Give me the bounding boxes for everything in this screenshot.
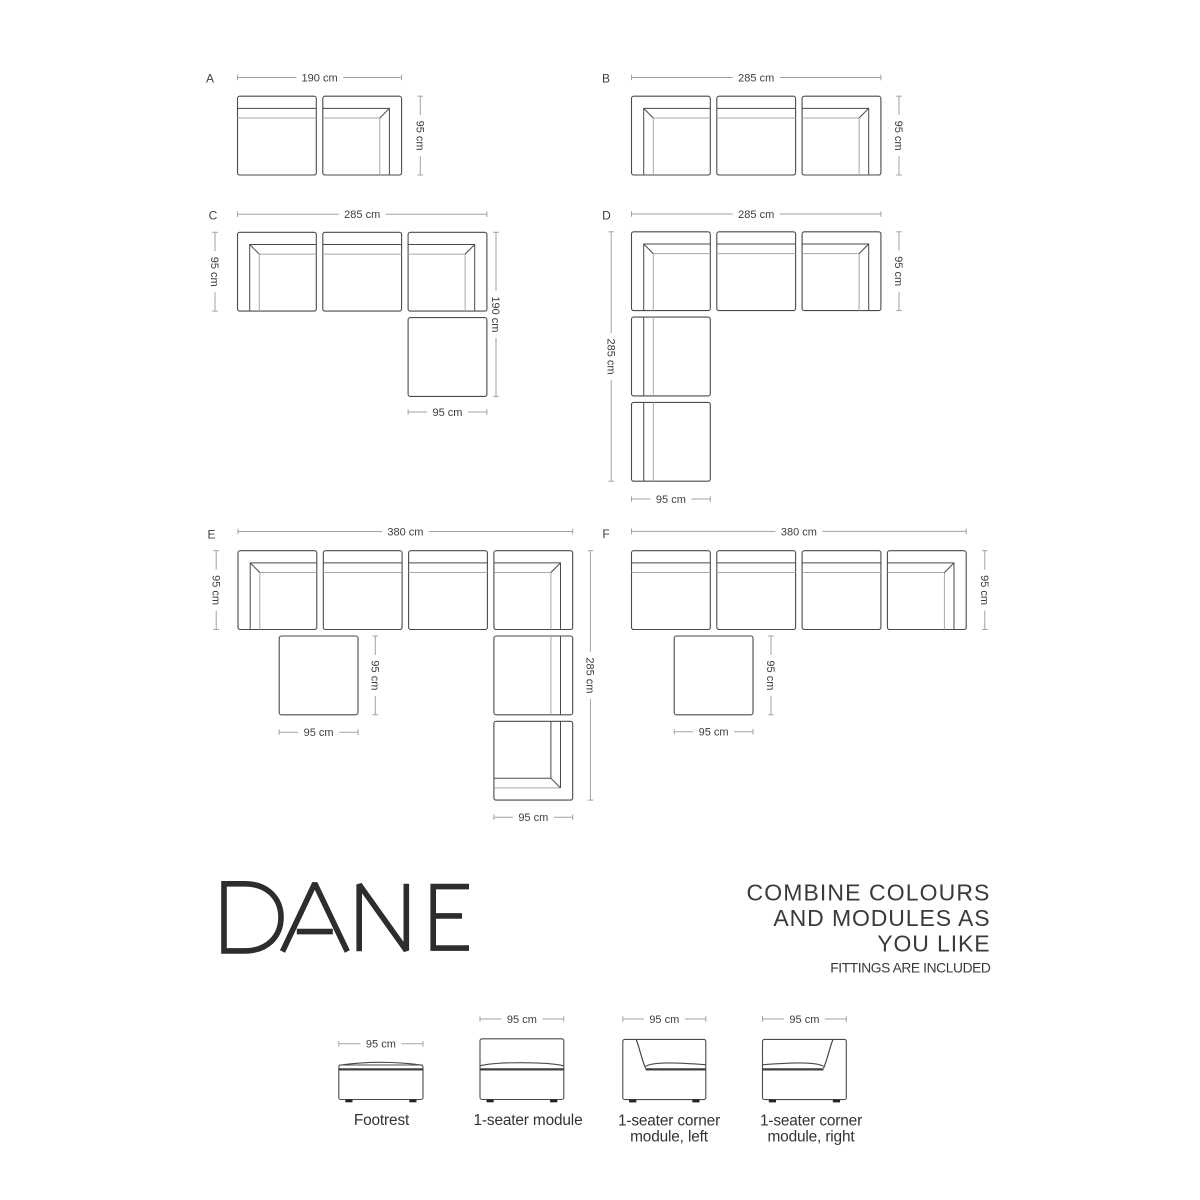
svg-text:1-seater corner: 1-seater corner — [618, 1113, 720, 1130]
svg-text:E: E — [207, 528, 215, 542]
svg-text:C: C — [209, 209, 218, 223]
svg-text:285 cm: 285 cm — [344, 209, 380, 221]
svg-text:190 cm: 190 cm — [489, 296, 501, 332]
svg-text:YOU LIKE: YOU LIKE — [877, 931, 990, 957]
svg-text:285 cm: 285 cm — [738, 72, 774, 84]
svg-text:D: D — [602, 209, 611, 223]
svg-text:95 cm: 95 cm — [304, 727, 334, 739]
svg-text:95 cm: 95 cm — [208, 257, 220, 287]
svg-text:95 cm: 95 cm — [649, 1014, 679, 1026]
svg-text:95 cm: 95 cm — [892, 256, 904, 286]
svg-text:95 cm: 95 cm — [892, 121, 904, 151]
svg-text:190 cm: 190 cm — [302, 72, 338, 84]
svg-text:95 cm: 95 cm — [368, 660, 380, 690]
svg-text:95 cm: 95 cm — [518, 812, 548, 824]
svg-text:95 cm: 95 cm — [366, 1039, 396, 1051]
svg-text:95 cm: 95 cm — [656, 494, 686, 506]
svg-text:AND MODULES AS: AND MODULES AS — [773, 905, 990, 931]
svg-text:95 cm: 95 cm — [764, 660, 776, 690]
svg-text:95 cm: 95 cm — [699, 727, 729, 739]
svg-text:1-seater corner: 1-seater corner — [760, 1113, 862, 1130]
svg-text:F: F — [602, 527, 609, 541]
svg-text:module, left: module, left — [630, 1129, 709, 1146]
svg-text:B: B — [602, 72, 610, 86]
svg-text:285 cm: 285 cm — [738, 209, 774, 221]
svg-text:95 cm: 95 cm — [789, 1014, 819, 1026]
svg-text:module, right: module, right — [767, 1129, 855, 1146]
svg-text:95 cm: 95 cm — [433, 407, 463, 419]
svg-text:95 cm: 95 cm — [978, 575, 990, 605]
svg-text:285 cm: 285 cm — [584, 657, 596, 693]
svg-text:95 cm: 95 cm — [507, 1014, 537, 1026]
svg-text:380 cm: 380 cm — [781, 526, 817, 538]
svg-text:Footrest: Footrest — [354, 1112, 410, 1129]
svg-text:95 cm: 95 cm — [209, 575, 221, 605]
svg-text:380 cm: 380 cm — [387, 526, 423, 538]
svg-text:COMBINE COLOURS: COMBINE COLOURS — [747, 880, 991, 906]
svg-text:A: A — [206, 72, 214, 86]
svg-text:1-seater module: 1-seater module — [474, 1112, 583, 1129]
svg-text:FITTINGS ARE INCLUDED: FITTINGS ARE INCLUDED — [830, 961, 991, 976]
svg-text:95 cm: 95 cm — [413, 121, 425, 151]
svg-text:285 cm: 285 cm — [604, 338, 616, 374]
